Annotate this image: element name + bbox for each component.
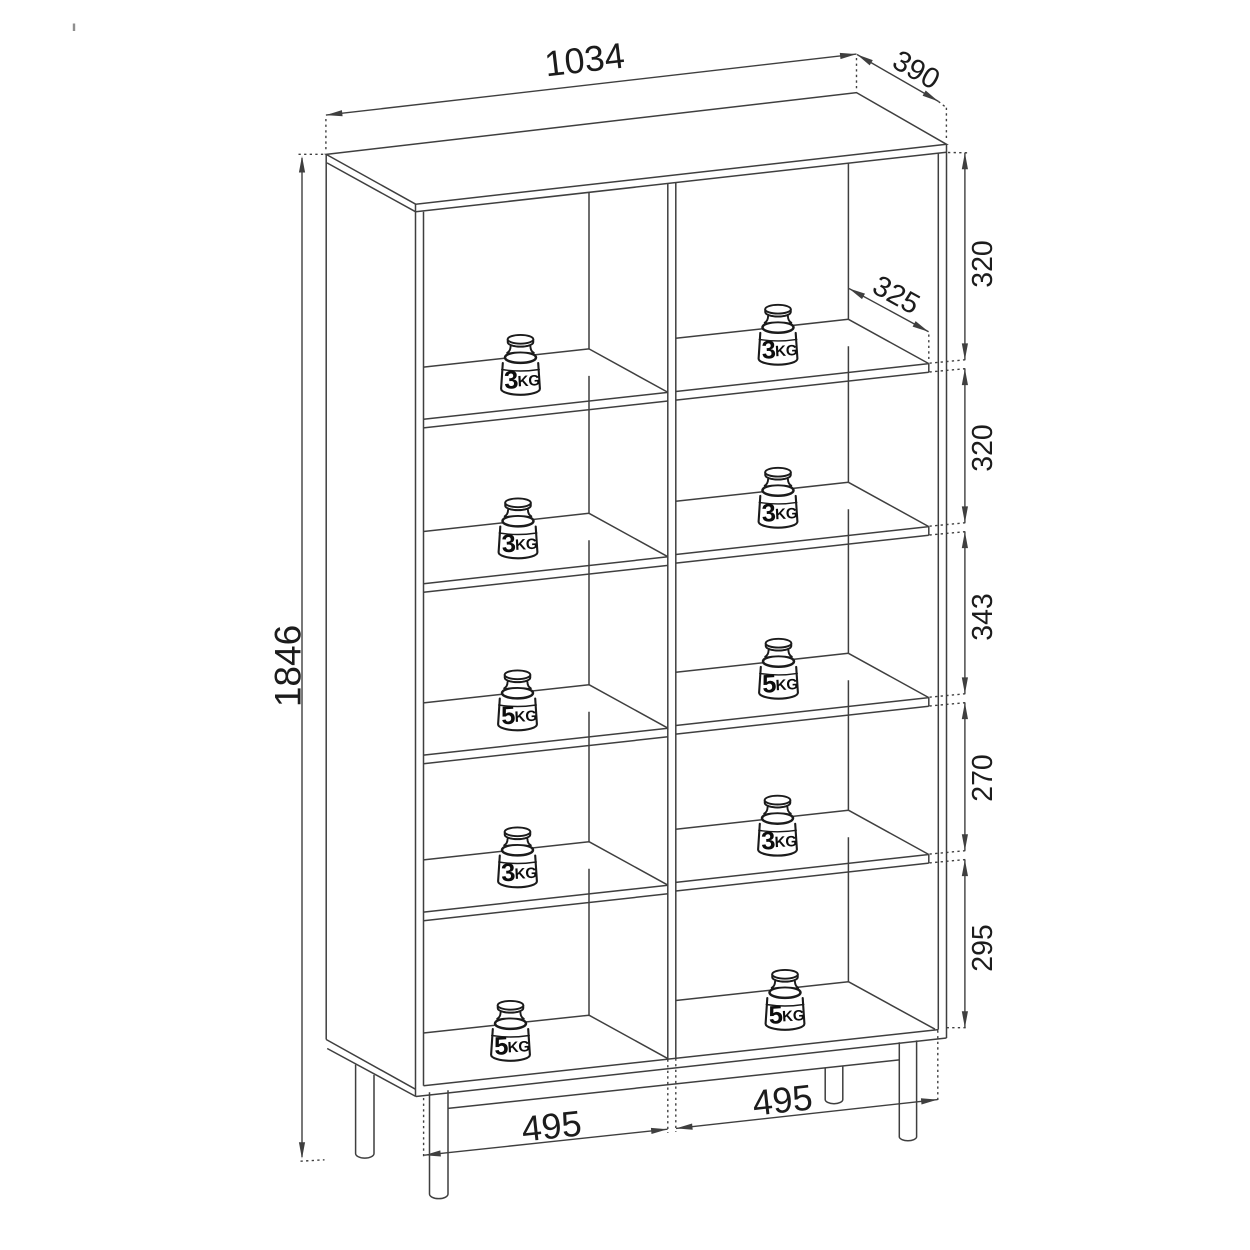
svg-text:495: 495 (519, 1102, 583, 1149)
svg-text:320: 320 (967, 240, 999, 288)
svg-text:295: 295 (967, 924, 999, 972)
svg-text:343: 343 (967, 593, 999, 641)
svg-text:270: 270 (967, 754, 999, 802)
svg-text:320: 320 (967, 424, 999, 472)
svg-text:1846: 1846 (268, 625, 309, 707)
svg-text:495: 495 (750, 1076, 814, 1123)
